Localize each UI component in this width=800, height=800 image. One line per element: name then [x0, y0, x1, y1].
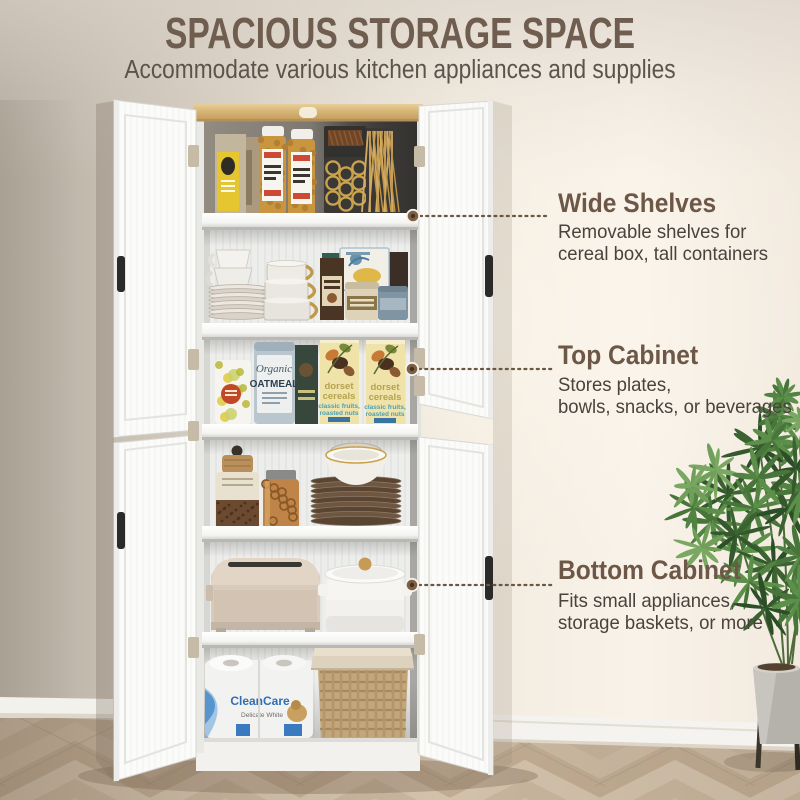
svg-text:cereals: cereals	[323, 391, 356, 402]
svg-text:Organic: Organic	[256, 363, 292, 375]
svg-text:roasted nuts: roasted nuts	[365, 411, 404, 418]
svg-text:classic fruits,: classic fruits,	[318, 403, 360, 410]
svg-text:classic fruits,: classic fruits,	[364, 404, 406, 411]
svg-text:CleanCare: CleanCare	[230, 694, 290, 708]
svg-text:roasted nuts: roasted nuts	[319, 410, 358, 417]
svg-text:Delicate White: Delicate White	[241, 712, 283, 719]
svg-text:OATMEAL: OATMEAL	[250, 379, 299, 390]
svg-text:cereals: cereals	[369, 392, 402, 403]
